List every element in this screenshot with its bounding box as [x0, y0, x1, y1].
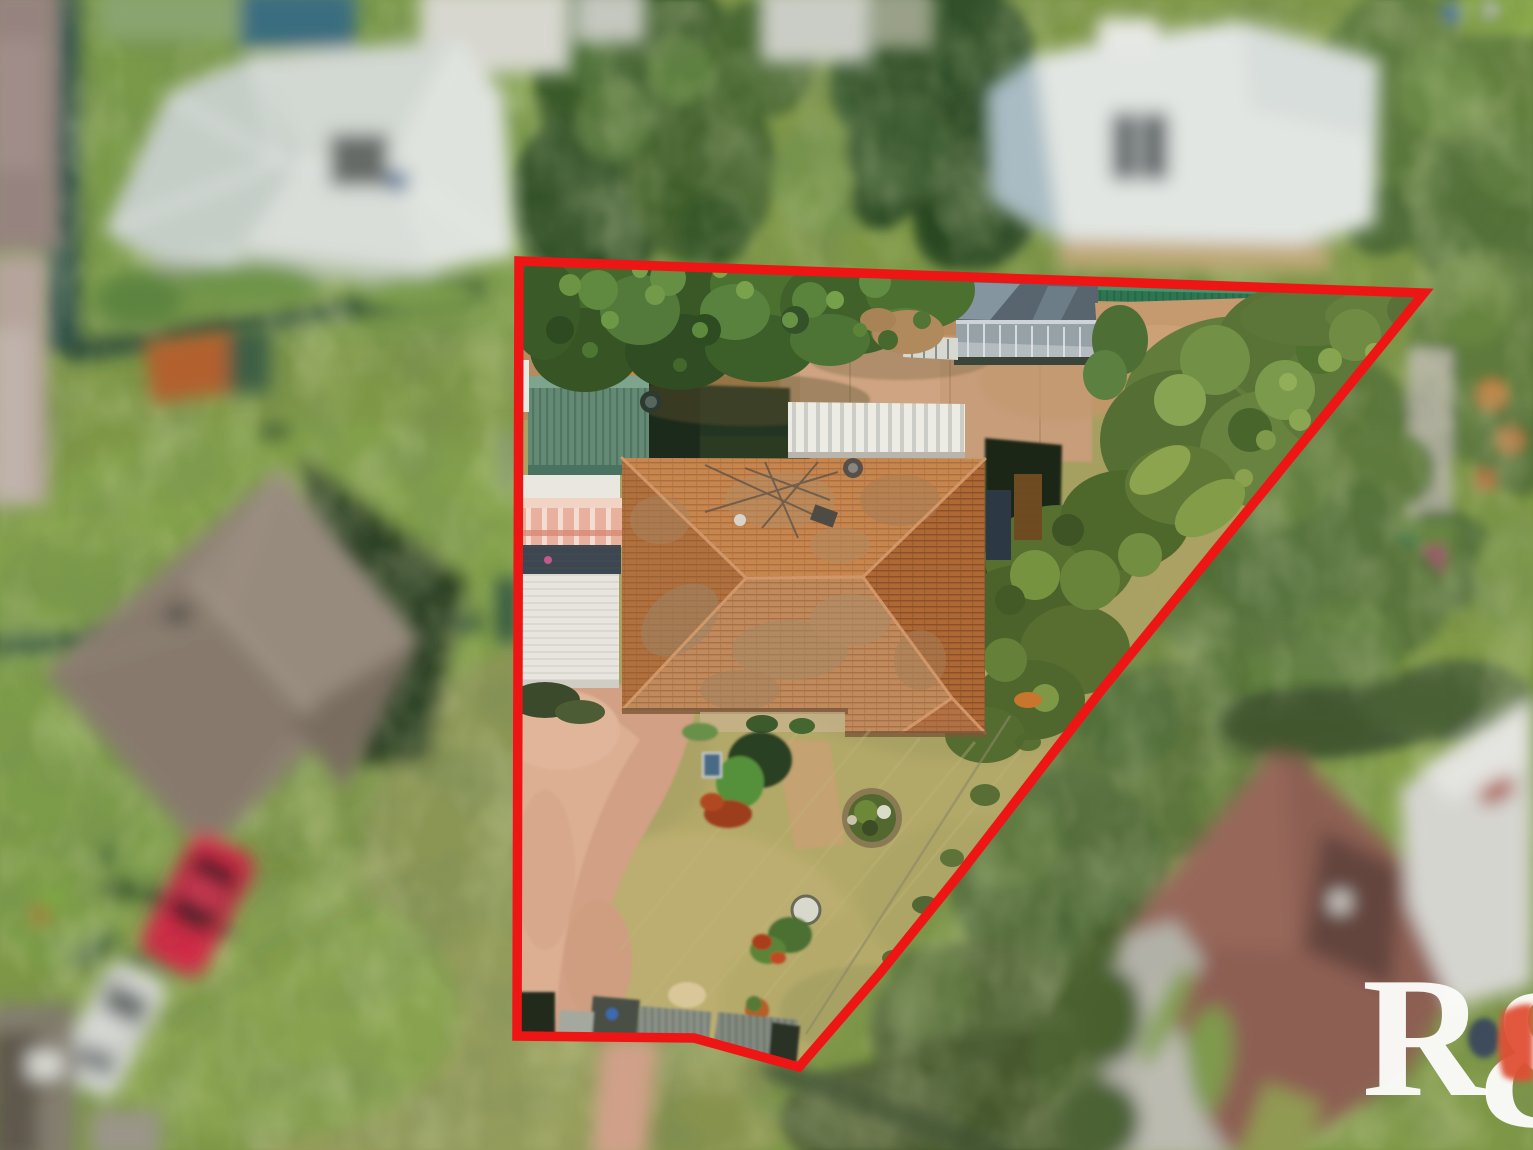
svg-text:R: R — [1362, 943, 1488, 1133]
